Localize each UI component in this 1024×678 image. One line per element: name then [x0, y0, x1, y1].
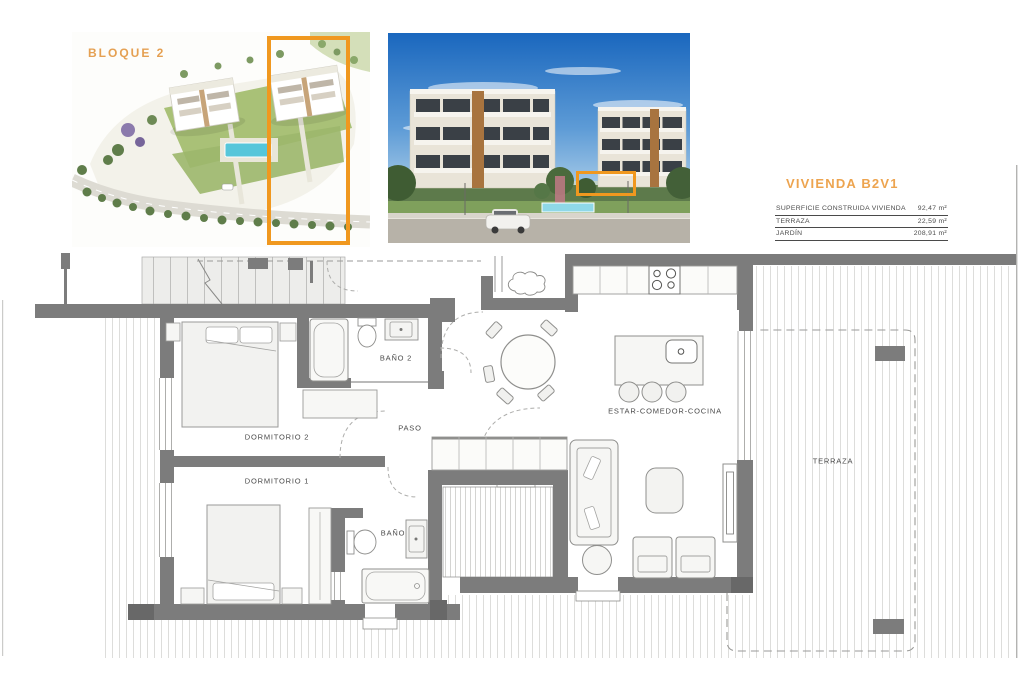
room-label-terraza: TERRAZA	[813, 457, 854, 466]
room-label-dormitorio-2: DORMITORIO 2	[245, 433, 309, 442]
coffee-table	[646, 468, 683, 513]
kitchen	[573, 266, 737, 402]
armchairs	[633, 537, 715, 578]
room-label-bano-2: BAÑO 2	[380, 354, 412, 363]
floor-plan-drawing	[0, 0, 1024, 678]
entry-planter	[508, 272, 545, 295]
nightstand	[166, 323, 180, 341]
room-label-bano: BAÑO	[381, 529, 405, 538]
tv-unit	[723, 464, 737, 542]
nightstand	[181, 588, 204, 604]
bathroom2-fixtures	[310, 318, 428, 382]
side-table	[583, 546, 612, 575]
room-label-dormitorio-1: DORMITORIO 1	[245, 477, 309, 486]
bathtub	[362, 569, 429, 603]
dresser	[303, 390, 377, 418]
courtyard	[443, 470, 553, 577]
plan-sheet: BLOQUE 2	[0, 0, 1024, 678]
hall-closet	[432, 437, 567, 470]
room-label-paso: PASO	[398, 424, 421, 433]
bathtub	[310, 319, 348, 381]
dining-set	[483, 319, 558, 404]
nightstand	[282, 588, 302, 604]
bar-stools	[619, 382, 686, 402]
nightstand	[280, 323, 296, 341]
toilet	[347, 531, 354, 554]
bedroom1-furniture	[181, 505, 331, 604]
room-label-estar: ESTAR-COMEDOR-COCINA	[608, 407, 722, 416]
